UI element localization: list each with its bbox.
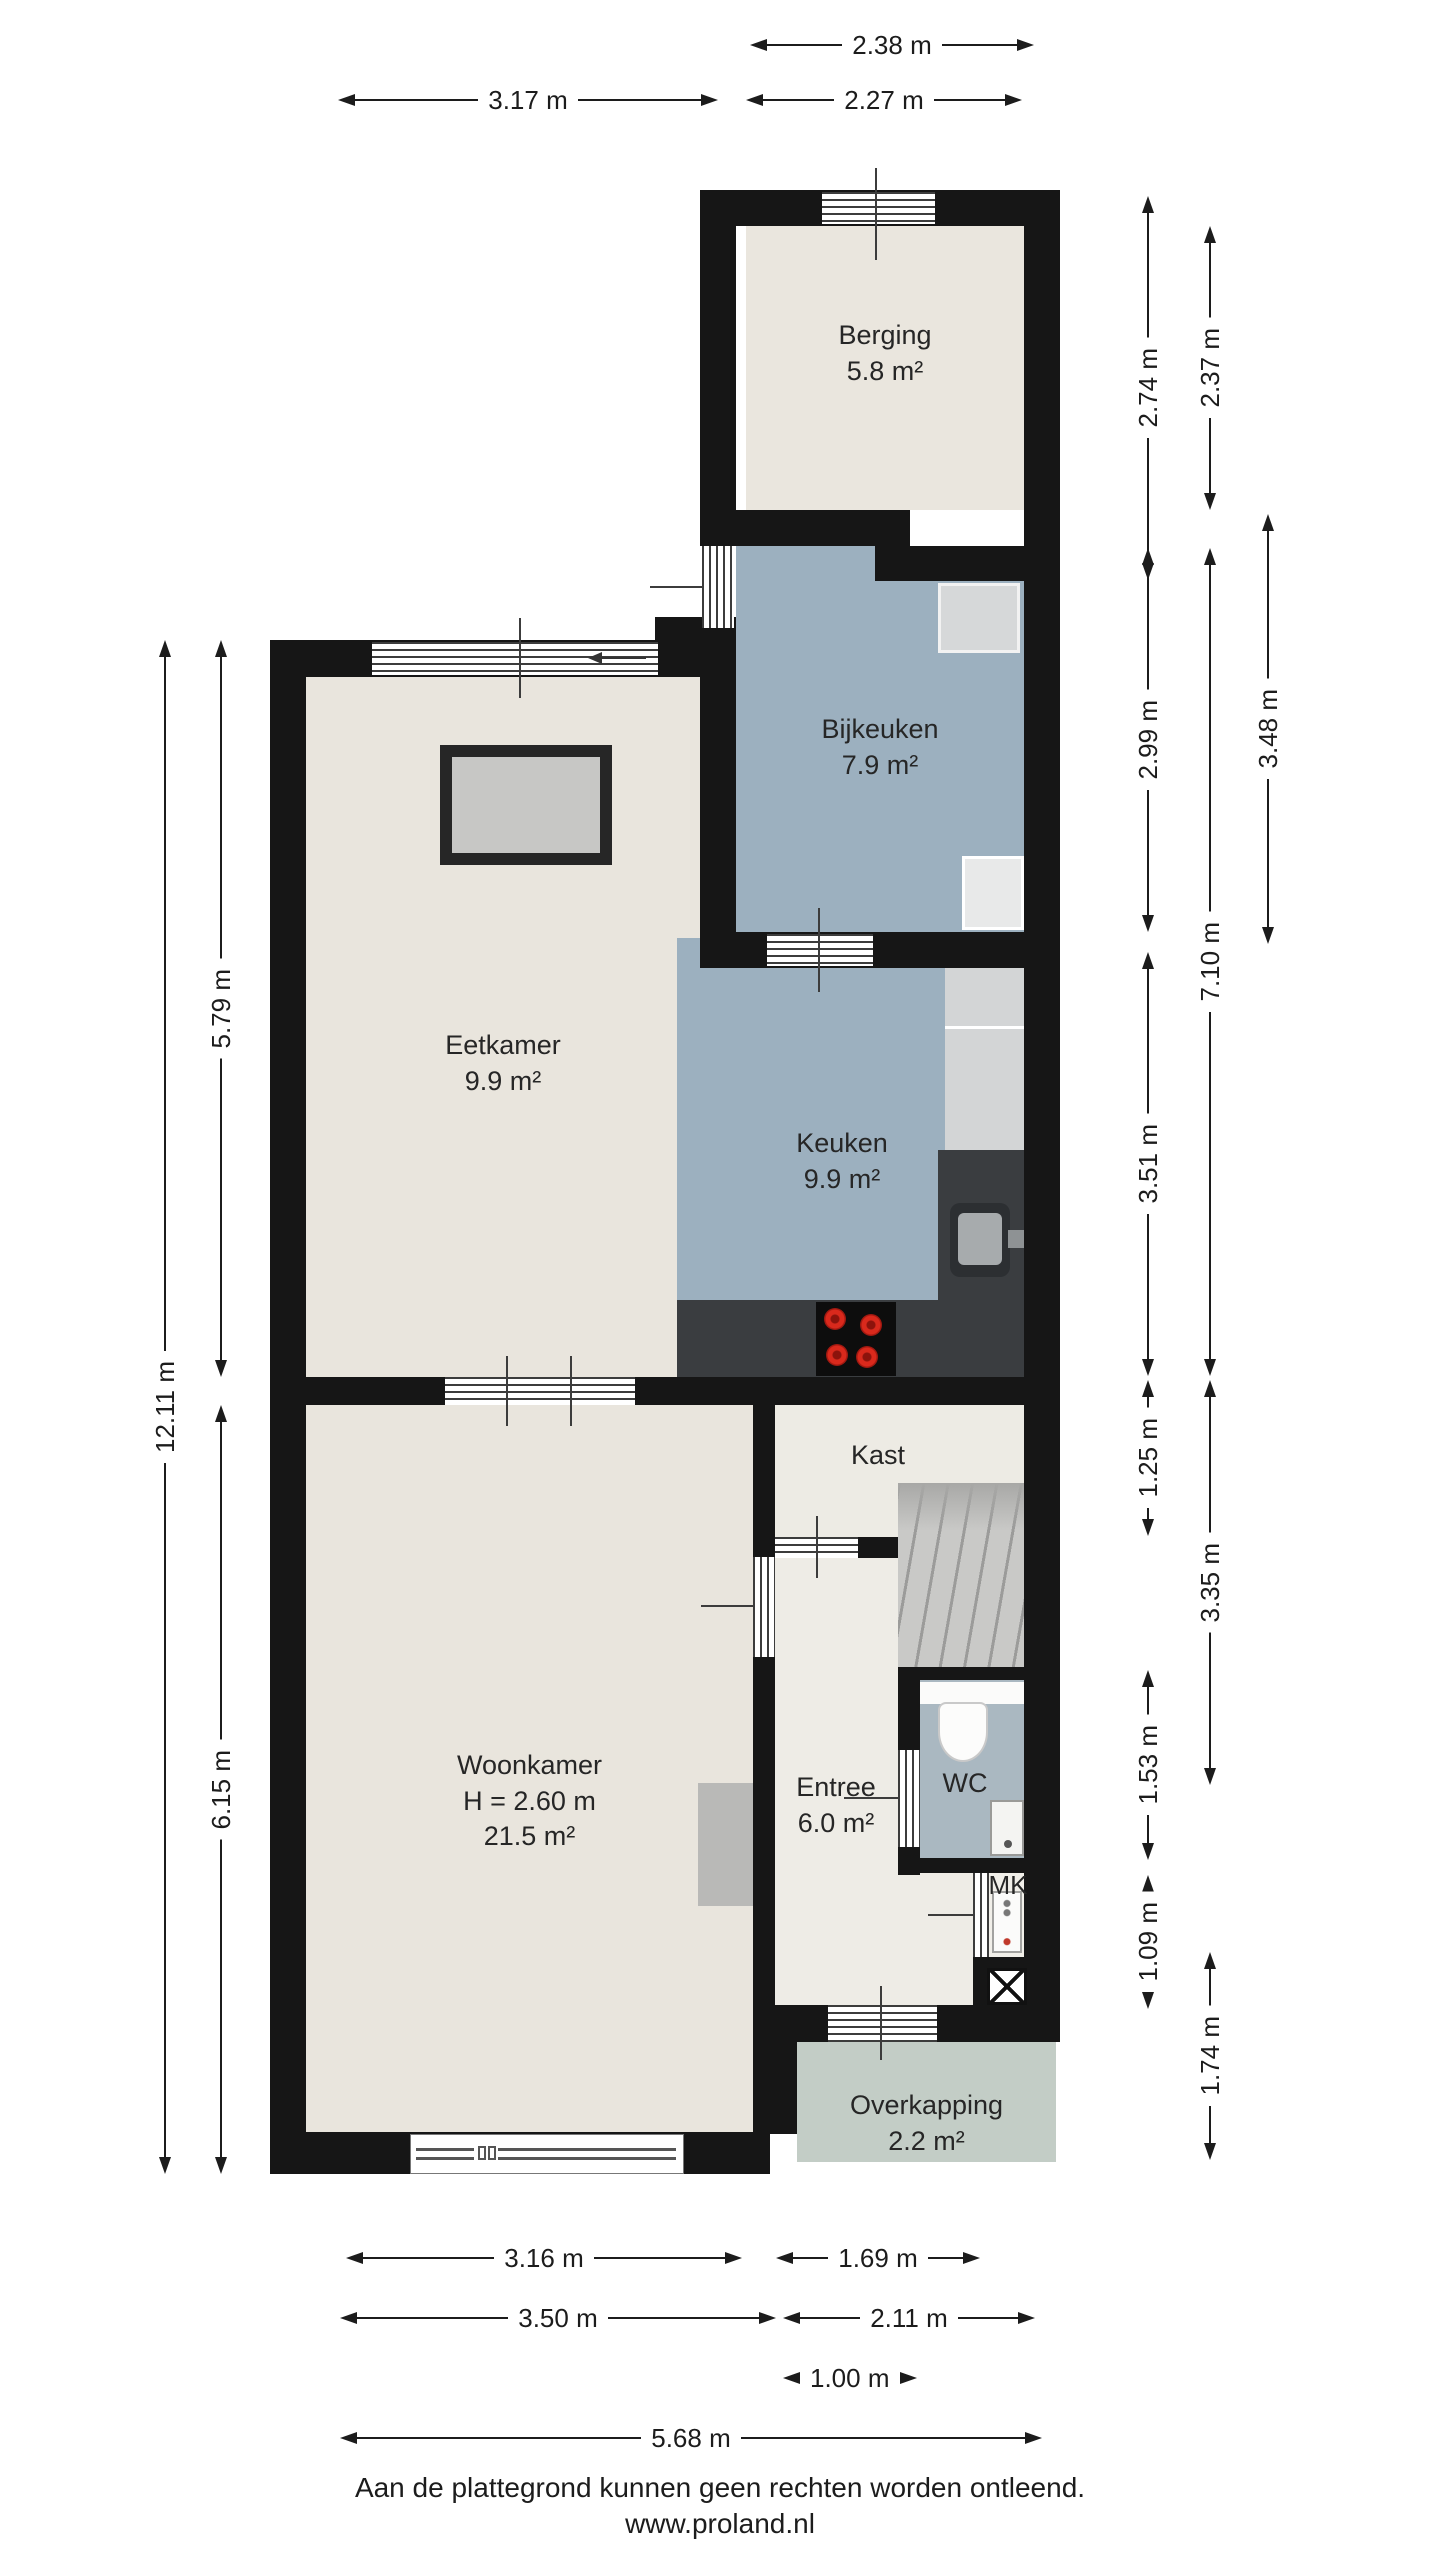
dimension-right-kast: 1.25 m [1135, 1380, 1161, 1536]
dimension-bottom-4: 2.11 m [783, 2305, 1035, 2331]
wall-eetkamer-bijkeuken [700, 617, 736, 938]
window-berging [822, 192, 935, 224]
room-label-eetkamer: Eetkamer 9.9 m² [306, 1028, 700, 1099]
dimension-label: 3.48 m [1253, 679, 1284, 779]
dimension-label: 5.79 m [206, 959, 237, 1059]
appliance [962, 856, 1024, 930]
dimension-right-348: 3.48 m [1255, 514, 1281, 944]
kitchen-sink [950, 1203, 1010, 1277]
room-height: H = 2.60 m [306, 1784, 753, 1820]
door-woonkamer-entree [753, 1557, 775, 1657]
room-name: Kast [790, 1438, 966, 1474]
room-label-woonkamer: Woonkamer H = 2.60 m 21.5 m² [306, 1748, 753, 1855]
sink-basin [958, 1213, 1002, 1265]
shaft-x-symbol [987, 1968, 1027, 2005]
disclaimer-text: Aan de plattegrond kunnen geen rechten w… [0, 2472, 1440, 2504]
staircase [898, 1483, 1024, 1667]
window-post [488, 2146, 496, 2160]
dimension-right-berging-inner: 2.37 m [1197, 226, 1223, 510]
dimension-label: 3.17 m [478, 85, 578, 116]
dimension-right-overkapping: 1.74 m [1197, 1952, 1223, 2160]
burner-icon [856, 1346, 878, 1368]
dimension-label: 3.35 m [1195, 1533, 1226, 1633]
dimension-label: 2.74 m [1133, 338, 1164, 438]
dimension-right-335: 3.35 m [1197, 1380, 1223, 1785]
dimension-label: 2.37 m [1195, 318, 1226, 418]
window-glass [498, 2148, 676, 2160]
burner-icon [860, 1314, 882, 1336]
dimension-label: 6.15 m [206, 1740, 237, 1840]
door-tick [928, 1914, 973, 1916]
opening-tick [506, 1356, 508, 1426]
room-name: Entree [756, 1770, 916, 1806]
room-area: 7.9 m² [736, 748, 1024, 784]
room-label-entree: Entree 6.0 m² [756, 1770, 916, 1841]
opening-tick [570, 1356, 572, 1426]
dimension-right-berging-outer: 2.74 m [1135, 196, 1161, 580]
dimension-bottom-1: 3.16 m [346, 2245, 742, 2271]
door-tick [816, 1516, 818, 1578]
door-tick [880, 1986, 882, 2060]
wall-right-outer [1024, 190, 1060, 2042]
sink-drain [1004, 1840, 1012, 1848]
room-label-bijkeuken: Bijkeuken 7.9 m² [736, 712, 1024, 783]
floor-plan-canvas: Berging 5.8 m² Bijkeuken 7.9 m² Eetkamer… [0, 0, 1440, 2560]
dimension-label: 1.09 m [1133, 1892, 1164, 1992]
dimension-label: 1.53 m [1133, 1715, 1164, 1815]
dimension-left-woonkamer: 6.15 m [208, 1405, 234, 2174]
room-label-kast: Kast [790, 1438, 966, 1474]
room-area: 9.9 m² [677, 1162, 1007, 1198]
room-name: Keuken [677, 1126, 1007, 1162]
room-name: MK [980, 1868, 1036, 1902]
dimension-label: 3.51 m [1133, 1114, 1164, 1214]
dimension-label: 5.68 m [641, 2423, 741, 2454]
window-tick [519, 618, 521, 698]
dimension-label: 2.27 m [834, 85, 934, 116]
room-area: 2.2 m² [797, 2124, 1056, 2160]
wall-berging-left [700, 190, 736, 546]
wall-overkapping-left [768, 2042, 797, 2134]
website-text: www.proland.nl [0, 2508, 1440, 2540]
room-label-keuken: Keuken 9.9 m² [677, 1126, 1007, 1197]
opening-eetkamer-woonkamer [445, 1377, 635, 1405]
wall-berging-jog [875, 546, 1024, 581]
dimension-right-mk: 1.09 m [1135, 1875, 1161, 2005]
wc-sink [990, 1800, 1024, 1856]
dimension-label: 1.25 m [1133, 1408, 1164, 1508]
sink-faucet [1008, 1230, 1024, 1248]
wall-kast-foot [858, 1537, 898, 1558]
dimension-label: 2.99 m [1133, 690, 1164, 790]
dimension-label: 12.11 m [150, 1351, 181, 1463]
dimension-label: 2.38 m [842, 30, 942, 61]
door-bijkeuken [702, 546, 734, 628]
wall-eetkamer-woonkamer [270, 1377, 1024, 1405]
dimension-top-2: 3.17 m [338, 87, 718, 113]
dimension-label: 2.11 m [860, 2303, 958, 2334]
window-tick [875, 168, 877, 260]
room-name: Eetkamer [306, 1028, 700, 1064]
cooktop [816, 1302, 896, 1376]
entry-arrow-icon [588, 650, 648, 666]
dimension-label: 1.69 m [828, 2243, 928, 2274]
wc-cistern [920, 1682, 1024, 1704]
front-door [828, 2005, 937, 2042]
room-area: 5.8 m² [746, 354, 1024, 390]
dimension-right-bijkeuken: 2.99 m [1135, 548, 1161, 932]
room-area: 6.0 m² [756, 1806, 916, 1842]
room-area: 9.9 m² [306, 1064, 700, 1100]
washing-machine [938, 583, 1020, 653]
dimension-label: 3.16 m [494, 2243, 594, 2274]
dimension-label: 1.74 m [1195, 2006, 1226, 2106]
dimension-right-keuken: 3.51 m [1135, 952, 1161, 1376]
room-label-overkapping: Overkapping 2.2 m² [797, 2088, 1056, 2159]
wall-berging-bottom [700, 510, 910, 546]
window-tick [818, 908, 820, 992]
burner-icon [826, 1344, 848, 1366]
dimension-label: 1.00 m [800, 2363, 900, 2394]
dimension-top-1: 2.38 m [750, 32, 1034, 58]
wall-mk-strip [973, 1957, 987, 2005]
dimension-bottom-3: 3.50 m [340, 2305, 776, 2331]
dimension-right-wc: 1.53 m [1135, 1670, 1161, 1860]
dimension-label: 7.10 m [1195, 912, 1226, 1012]
dimension-left-eetkamer: 5.79 m [208, 640, 234, 1377]
room-label-wc: WC [925, 1766, 1005, 1802]
room-name: Bijkeuken [736, 712, 1024, 748]
dimension-left-total: 12.11 m [152, 640, 178, 2174]
toilet [938, 1702, 988, 1762]
room-name: Overkapping [797, 2088, 1056, 2124]
door-tick [701, 1605, 753, 1607]
room-name: WC [925, 1766, 1005, 1802]
room-label-mk: MK [980, 1868, 1036, 1902]
room-label-berging: Berging 5.8 m² [746, 318, 1024, 389]
dimension-label: 3.50 m [508, 2303, 608, 2334]
room-area: 21.5 m² [306, 1819, 753, 1855]
dimension-bottom-2: 1.69 m [776, 2245, 980, 2271]
window-keuken [767, 934, 873, 966]
dimension-right-710: 7.10 m [1197, 548, 1223, 1376]
window-post [478, 2146, 486, 2160]
dimension-top-3: 2.27 m [746, 87, 1022, 113]
dimension-bottom-5: 1.00 m [783, 2365, 903, 2391]
dimension-bottom-6: 5.68 m [340, 2425, 1042, 2451]
wall-left-outer [270, 640, 306, 2174]
window-glass [416, 2148, 474, 2160]
room-name: Woonkamer [306, 1748, 753, 1784]
room-name: Berging [746, 318, 1024, 354]
burner-icon [824, 1308, 846, 1330]
door-tick [650, 586, 702, 588]
roof-window [440, 745, 612, 865]
